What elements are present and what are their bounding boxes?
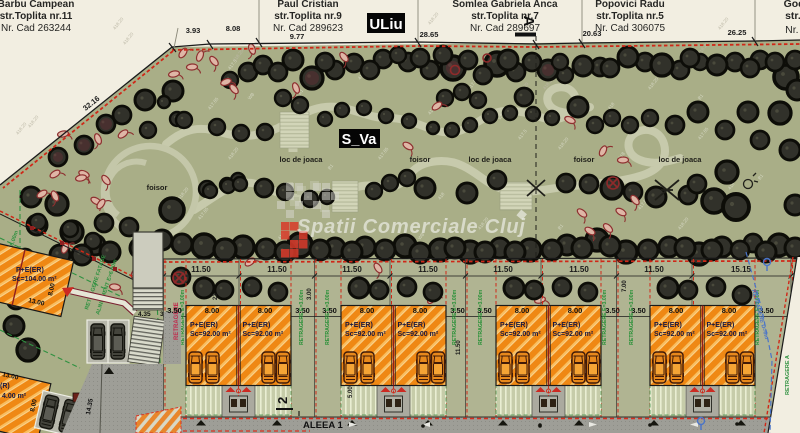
- svg-text:28.65: 28.65: [420, 30, 439, 39]
- svg-text:RETRAGERE E=3.00m: RETRAGERE E=3.00m: [629, 289, 635, 345]
- svg-text:str.Toplita nr.11: str.Toplita nr.11: [0, 11, 73, 22]
- svg-text:RETRAGERE E=3.00m: RETRAGERE E=3.00m: [299, 289, 305, 345]
- svg-text:Sc=104.00 m²: Sc=104.00 m²: [12, 276, 57, 283]
- svg-text:P+E(ER): P+E(ER): [707, 322, 735, 329]
- svg-text:loc de joaca: loc de joaca: [469, 155, 513, 164]
- svg-text:11.50: 11.50: [342, 265, 362, 274]
- svg-text:Nr. Cad 306075: Nr. Cad 306075: [595, 23, 665, 34]
- svg-text:11.50: 11.50: [191, 265, 211, 274]
- svg-text:Sc=92.00 m²: Sc=92.00 m²: [707, 331, 748, 338]
- svg-text:8.00: 8.00: [205, 306, 220, 315]
- svg-text:Sc=92.00 m²: Sc=92.00 m²: [398, 331, 439, 338]
- svg-text:Popovici Radu: Popovici Radu: [595, 0, 664, 10]
- svg-text:Paul Cristian: Paul Cristian: [277, 0, 338, 10]
- svg-text:P+E(ER): P+E(ER): [553, 322, 581, 329]
- svg-text:S_Va: S_Va: [342, 132, 378, 148]
- svg-text:Sc=92.00 m²: Sc=92.00 m²: [500, 331, 541, 338]
- svg-text:Sc=92.00 m²: Sc=92.00 m²: [243, 331, 284, 338]
- svg-text:foisor: foisor: [410, 155, 431, 164]
- svg-text:Sc=92.00 m²: Sc=92.00 m²: [345, 331, 386, 338]
- svg-text:P+E(ER): P+E(ER): [345, 322, 373, 329]
- svg-text:8.00: 8.00: [669, 306, 684, 315]
- svg-text:str.Toplita nr.9: str.Toplita nr.9: [274, 11, 342, 22]
- svg-text:RETRAGERE E=3.00m: RETRAGERE E=3.00m: [325, 289, 331, 345]
- svg-text:P+E(ER): P+E(ER): [243, 322, 271, 329]
- svg-text:Nr. Ca: Nr. Ca: [785, 24, 800, 36]
- svg-text:RETRAGERE E=3.00m: RETRAGERE E=3.00m: [478, 289, 484, 345]
- svg-text:26.25: 26.25: [728, 28, 747, 37]
- svg-text:8.00: 8.00: [360, 306, 375, 315]
- svg-text:Spatii Comerciale Cluj: Spatii Comerciale Cluj: [297, 216, 526, 238]
- svg-text:ULiu: ULiu: [369, 16, 402, 33]
- svg-text:Nr. Cad 289623: Nr. Cad 289623: [273, 23, 343, 34]
- svg-text:8.00: 8.00: [258, 306, 273, 315]
- svg-text:Sc=92.00 m²: Sc=92.00 m²: [190, 331, 231, 338]
- svg-text:P+E(ER): P+E(ER): [500, 322, 528, 329]
- svg-text:Sc=92.00 m²: Sc=92.00 m²: [553, 331, 594, 338]
- svg-text:Barbu Campean: Barbu Campean: [0, 0, 74, 10]
- svg-text:RETRAGERE E=3.00m: RETRAGERE E=3.00m: [602, 289, 608, 345]
- svg-text:11.50: 11.50: [418, 265, 438, 274]
- svg-text:11.50: 11.50: [456, 340, 462, 355]
- svg-text:3.93: 3.93: [186, 26, 201, 35]
- svg-text:P+E(ER): P+E(ER): [190, 322, 218, 329]
- svg-text:Somlea Gabriela Anca: Somlea Gabriela Anca: [452, 0, 558, 10]
- svg-text:8.00: 8.00: [722, 306, 737, 315]
- svg-text:foisor: foisor: [574, 155, 595, 164]
- svg-text:11.50: 11.50: [569, 265, 589, 274]
- svg-text:2: 2: [275, 397, 290, 404]
- svg-text:foisor: foisor: [147, 183, 168, 192]
- svg-text:Goda: Goda: [784, 0, 800, 10]
- svg-text:Sc=92.00 m²: Sc=92.00 m²: [654, 331, 695, 338]
- svg-text:3.50: 3.50: [167, 306, 182, 315]
- svg-text:8.00: 8.00: [568, 306, 583, 315]
- svg-text:A: A: [520, 16, 537, 27]
- svg-text:loc de joaca: loc de joaca: [659, 155, 703, 164]
- svg-text:15.15: 15.15: [731, 265, 752, 274]
- svg-text:Nr. Cad 263244: Nr. Cad 263244: [1, 23, 71, 34]
- svg-text:7.00: 7.00: [622, 280, 628, 292]
- svg-text:P+E(ER): P+E(ER): [398, 322, 426, 329]
- svg-text:11.50: 11.50: [644, 265, 664, 274]
- svg-text:5.00: 5.00: [348, 386, 354, 398]
- svg-text:loc de joaca: loc de joaca: [280, 155, 324, 164]
- svg-text:4.00 m²: 4.00 m²: [2, 393, 27, 400]
- svg-text:23: 23: [213, 293, 219, 300]
- svg-text:ALEEA 1: ALEEA 1: [303, 420, 343, 431]
- svg-text:str.Toplita nr.5: str.Toplita nr.5: [596, 11, 664, 22]
- svg-text:RETRAGERE A: RETRAGERE A: [785, 355, 791, 395]
- svg-text:8.08: 8.08: [226, 24, 241, 33]
- svg-text:11.50: 11.50: [493, 265, 513, 274]
- svg-text:8.00: 8.00: [515, 306, 530, 315]
- svg-text:RETRAGERE E=3.00m: RETRAGERE E=3.00m: [452, 289, 458, 345]
- svg-text:(R): (R): [0, 383, 10, 390]
- svg-text:3.00: 3.00: [307, 288, 313, 300]
- svg-text:P+E(ER): P+E(ER): [16, 267, 44, 274]
- svg-text:P+E(ER): P+E(ER): [654, 322, 682, 329]
- svg-text:8.00: 8.00: [413, 306, 428, 315]
- svg-text:11.50: 11.50: [267, 265, 287, 274]
- svg-text:str.To: str.To: [785, 10, 800, 22]
